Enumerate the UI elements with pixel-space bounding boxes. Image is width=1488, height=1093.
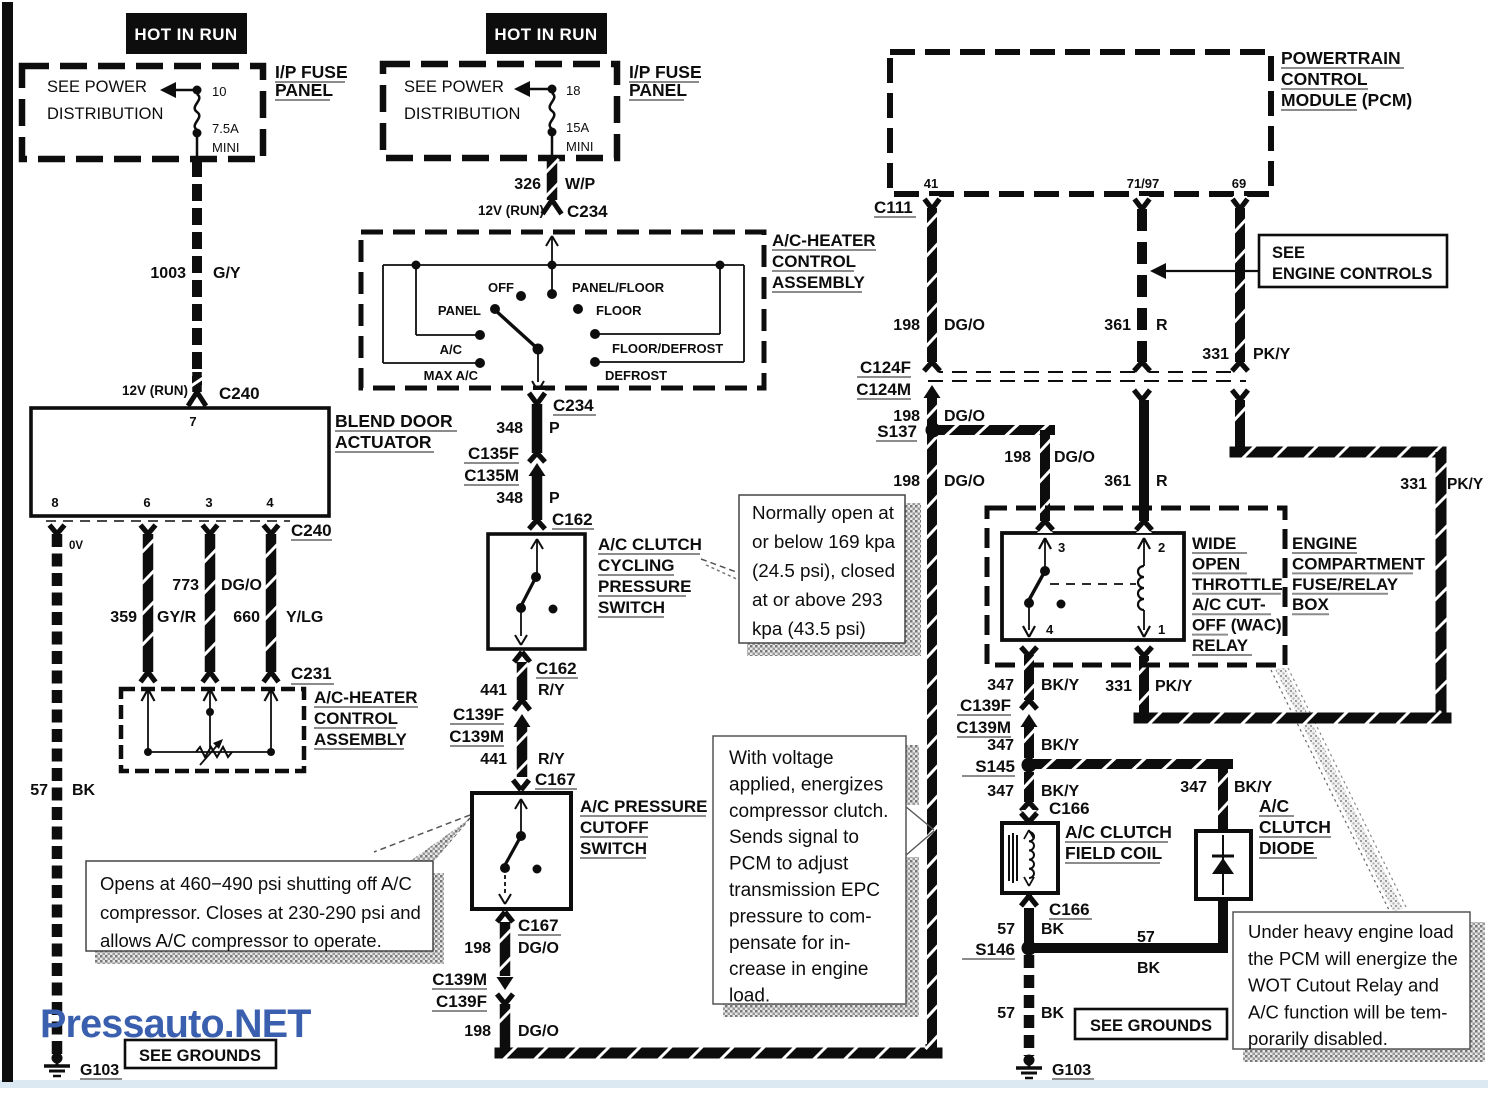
svg-text:ACTUATOR: ACTUATOR [335,432,432,452]
svg-text:DIODE: DIODE [1259,838,1314,858]
svg-text:FUSE/RELAY: FUSE/RELAY [1292,575,1399,594]
svg-text:ENGINE CONTROLS: ENGINE CONTROLS [1272,265,1432,283]
svg-text:348: 348 [496,490,523,507]
svg-text:S145: S145 [975,757,1015,776]
svg-text:MAX A/C: MAX A/C [424,368,479,383]
svg-text:A/C: A/C [1259,796,1290,816]
svg-text:C139M: C139M [432,970,487,989]
svg-text:C166: C166 [1049,799,1090,818]
svg-text:MODULE (PCM): MODULE (PCM) [1281,90,1412,110]
svg-text:361: 361 [1104,473,1131,490]
svg-text:C234: C234 [553,396,594,415]
svg-text:SWITCH: SWITCH [580,839,647,858]
svg-text:347: 347 [987,737,1014,754]
svg-text:57: 57 [1137,929,1155,946]
svg-text:BOX: BOX [1292,595,1330,614]
svg-text:41: 41 [924,176,938,191]
svg-text:441: 441 [480,751,507,768]
svg-text:SEE: SEE [1272,244,1305,262]
svg-text:W/P: W/P [565,176,596,193]
svg-text:4: 4 [1046,622,1054,637]
svg-text:ENGINE: ENGINE [1292,534,1357,553]
svg-text:1: 1 [1158,622,1165,637]
svg-text:1003: 1003 [150,265,186,282]
svg-text:SEE GROUNDS: SEE GROUNDS [139,1047,261,1065]
svg-text:GY/R: GY/R [157,609,197,626]
svg-text:BK/Y: BK/Y [1041,677,1080,694]
svg-text:198: 198 [893,317,920,334]
svg-text:I/P FUSE: I/P FUSE [629,62,702,82]
svg-text:7.5A: 7.5A [212,121,239,136]
svg-text:THROTTLE: THROTTLE [1192,575,1283,594]
svg-text:C139M: C139M [449,727,504,746]
svg-text:BK/Y: BK/Y [1041,737,1080,754]
svg-text:DG/O: DG/O [221,577,262,594]
svg-text:pensate for in-: pensate for in- [729,933,850,954]
svg-text:Normally open at: Normally open at [752,502,895,523]
svg-text:A/C PRESSURE: A/C PRESSURE [580,797,708,816]
svg-text:HOT IN RUN: HOT IN RUN [134,25,237,44]
svg-text:COMPARTMENT: COMPARTMENT [1292,554,1425,573]
svg-text:SEE POWER: SEE POWER [47,78,147,96]
svg-text:A/C-HEATER: A/C-HEATER [314,688,418,707]
svg-text:6: 6 [143,495,150,510]
svg-text:pressure to com-: pressure to com- [729,906,872,927]
svg-text:660: 660 [233,609,260,626]
svg-text:With voltage: With voltage [729,748,834,769]
svg-text:10: 10 [212,84,226,99]
svg-text:WIDE: WIDE [1192,534,1236,553]
svg-text:BK/Y: BK/Y [1234,779,1273,796]
svg-text:PANEL: PANEL [275,80,333,100]
svg-text:C124F: C124F [860,358,911,377]
svg-text:MINI: MINI [212,140,239,155]
svg-text:773: 773 [172,577,199,594]
svg-text:C139F: C139F [453,705,504,724]
svg-text:SEE GROUNDS: SEE GROUNDS [1090,1017,1212,1035]
svg-text:DISTRIBUTION: DISTRIBUTION [47,105,163,123]
svg-text:FLOOR/DEFROST: FLOOR/DEFROST [612,341,723,356]
svg-text:C240: C240 [219,384,260,403]
svg-text:C124M: C124M [856,380,911,399]
svg-text:R: R [1156,473,1168,490]
svg-text:PCM to adjust: PCM to adjust [729,854,849,875]
svg-text:57: 57 [997,1005,1015,1022]
svg-text:361: 361 [1104,317,1131,334]
svg-text:Sends signal to: Sends signal to [729,827,859,848]
svg-text:SWITCH: SWITCH [598,598,665,617]
svg-text:ASSEMBLY: ASSEMBLY [772,273,866,292]
svg-text:12V (RUN): 12V (RUN) [122,383,188,398]
svg-text:331: 331 [1105,678,1132,695]
svg-text:331: 331 [1400,476,1427,493]
svg-text:347: 347 [1180,779,1207,796]
svg-text:C167: C167 [518,916,559,935]
svg-text:crease in engine: crease in engine [729,959,868,980]
svg-text:R/Y: R/Y [538,682,565,699]
svg-text:HOT IN RUN: HOT IN RUN [494,25,597,44]
svg-text:P: P [549,490,560,507]
svg-text:69: 69 [1232,176,1246,191]
svg-text:347: 347 [987,783,1014,800]
svg-text:3: 3 [205,495,212,510]
svg-text:BLEND DOOR: BLEND DOOR [335,411,453,431]
svg-text:SEE POWER: SEE POWER [404,78,504,96]
svg-text:BK: BK [1041,1005,1065,1022]
svg-text:71/97: 71/97 [1127,176,1160,191]
svg-text:Opens at 460−490 psi shutting: Opens at 460−490 psi shutting off A/C [100,873,412,894]
svg-text:DG/O: DG/O [944,408,985,425]
svg-text:load.: load. [729,986,770,1007]
svg-text:0V: 0V [69,540,83,552]
svg-text:2: 2 [1158,540,1165,555]
svg-text:RELAY: RELAY [1192,636,1249,655]
svg-text:198: 198 [893,473,920,490]
svg-text:347: 347 [987,677,1014,694]
svg-text:CONTROL: CONTROL [1281,69,1368,89]
svg-text:OPEN: OPEN [1192,554,1240,573]
svg-text:Y/LG: Y/LG [286,609,323,626]
svg-text:DG/O: DG/O [1054,449,1095,466]
svg-text:DEFROST: DEFROST [605,368,667,383]
svg-text:Under heavy engine load: Under heavy engine load [1248,921,1454,942]
svg-text:C240: C240 [291,521,332,540]
svg-text:CONTROL: CONTROL [772,252,856,271]
svg-text:A/C CLUTCH: A/C CLUTCH [1065,822,1172,842]
svg-text:57: 57 [997,921,1015,938]
svg-text:C111: C111 [874,198,913,217]
svg-text:BK: BK [1137,960,1161,977]
svg-text:PANEL: PANEL [438,303,481,318]
svg-text:331: 331 [1202,346,1229,363]
svg-text:WOT Cutout Relay and: WOT Cutout Relay and [1248,975,1439,996]
svg-text:C167: C167 [535,770,576,789]
svg-text:198: 198 [464,1023,491,1040]
svg-text:PK/Y: PK/Y [1447,476,1484,493]
svg-text:CUTOFF: CUTOFF [580,818,649,837]
svg-text:MINI: MINI [566,139,593,154]
svg-text:the PCM will energize the: the PCM will energize the [1248,948,1458,969]
svg-text:R: R [1156,317,1168,334]
svg-text:C139F: C139F [436,992,487,1011]
svg-text:359: 359 [110,609,137,626]
svg-text:at or above 293: at or above 293 [752,589,883,610]
svg-text:C162: C162 [552,510,593,529]
svg-text:FLOOR: FLOOR [596,303,642,318]
svg-text:7: 7 [189,414,196,429]
svg-text:DISTRIBUTION: DISTRIBUTION [404,105,520,123]
svg-text:compressor. Closes at 230-290: compressor. Closes at 230-290 psi and [100,902,421,923]
svg-text:R/Y: R/Y [538,751,565,768]
svg-text:PANEL: PANEL [629,80,687,100]
svg-text:3: 3 [1058,540,1065,555]
svg-text:A/C function will be tem-: A/C function will be tem- [1248,1001,1447,1022]
svg-text:allows A/C compressor to oper: allows A/C compressor to operate. [100,930,382,951]
svg-text:CONTROL: CONTROL [314,709,398,728]
svg-text:CLUTCH: CLUTCH [1259,817,1331,837]
svg-text:348: 348 [496,420,523,437]
svg-text:POWERTRAIN: POWERTRAIN [1281,48,1401,68]
svg-text:(24.5 psi), closed: (24.5 psi), closed [752,560,895,581]
svg-text:PK/Y: PK/Y [1253,346,1291,363]
svg-text:DG/O: DG/O [518,1023,559,1040]
svg-text:C231: C231 [291,664,332,683]
svg-text:applied, energizes: applied, energizes [729,774,883,795]
svg-text:441: 441 [480,682,507,699]
svg-text:S137: S137 [877,422,917,441]
svg-text:or below 169 kpa: or below 169 kpa [752,531,896,552]
svg-text:C162: C162 [536,659,577,678]
svg-text:G103: G103 [80,1062,119,1079]
svg-text:4: 4 [266,495,274,510]
svg-text:C139M: C139M [956,718,1011,737]
svg-text:DG/O: DG/O [944,317,985,334]
svg-text:G103: G103 [1052,1062,1091,1079]
svg-text:Pressauto.NET: Pressauto.NET [40,1002,311,1046]
svg-text:15A: 15A [566,120,589,135]
svg-text:BK: BK [72,782,96,799]
svg-text:C166: C166 [1049,900,1090,919]
svg-text:A/C: A/C [440,342,463,357]
svg-text:BK/Y: BK/Y [1041,783,1080,800]
svg-text:I/P FUSE: I/P FUSE [275,62,348,82]
svg-text:ASSEMBLY: ASSEMBLY [314,730,408,749]
svg-text:P: P [549,420,560,437]
svg-text:DG/O: DG/O [518,940,559,957]
svg-text:BK: BK [1041,921,1065,938]
svg-text:A/C CUT-: A/C CUT- [1192,595,1266,614]
svg-text:C135M: C135M [464,466,519,485]
svg-text:S146: S146 [975,940,1015,959]
svg-text:198: 198 [464,940,491,957]
svg-text:compressor clutch.: compressor clutch. [729,801,888,822]
svg-text:A/C-HEATER: A/C-HEATER [772,231,876,250]
svg-text:326: 326 [514,176,541,193]
svg-text:CYCLING: CYCLING [598,556,675,575]
svg-text:G/Y: G/Y [213,265,241,282]
svg-text:C139F: C139F [960,696,1011,715]
svg-text:DG/O: DG/O [944,473,985,490]
svg-text:kpa (43.5 psi): kpa (43.5 psi) [752,618,866,639]
svg-text:57: 57 [30,782,48,799]
svg-text:8: 8 [51,495,58,510]
svg-text:C135F: C135F [468,444,519,463]
svg-text:PRESSURE: PRESSURE [598,577,692,596]
svg-text:198: 198 [1004,449,1031,466]
svg-text:12V (RUN): 12V (RUN) [478,203,544,218]
svg-text:C234: C234 [567,202,608,221]
svg-text:A/C CLUTCH: A/C CLUTCH [598,535,702,554]
svg-text:OFF: OFF [488,280,514,295]
svg-text:OFF (WAC): OFF (WAC) [1192,616,1282,635]
svg-text:transmission EPC: transmission EPC [729,880,880,901]
svg-text:PK/Y: PK/Y [1155,678,1193,695]
svg-text:PANEL/FLOOR: PANEL/FLOOR [572,280,665,295]
svg-text:porarily disabled.: porarily disabled. [1248,1028,1388,1049]
svg-text:FIELD COIL: FIELD COIL [1065,843,1163,863]
svg-text:18: 18 [566,83,580,98]
